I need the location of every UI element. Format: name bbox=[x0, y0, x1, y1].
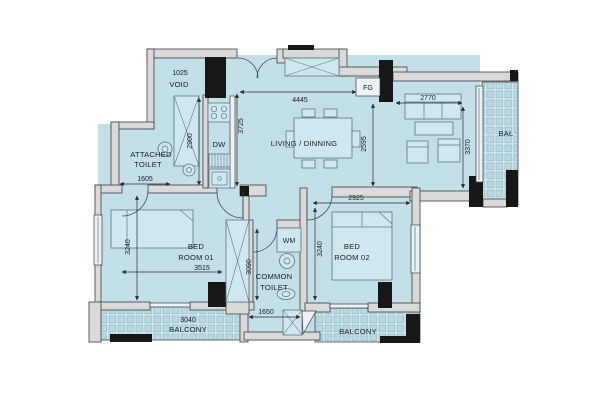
floor-plan: 1025 VOID 2900 ATTACHED TOILET 1605 DW 3… bbox=[0, 0, 600, 400]
floor-plan-drawing: 1025 VOID 2900 ATTACHED TOILET 1605 DW 3… bbox=[0, 0, 600, 400]
balcony-se-label: BALCONY bbox=[339, 327, 377, 336]
dimension-3240-bed1: 3240 bbox=[125, 239, 132, 255]
washing-machine-label: WM bbox=[283, 238, 296, 245]
dimension-2770: 2770 bbox=[420, 95, 436, 102]
foyer-cabinet bbox=[285, 58, 339, 76]
dimension-1605: 1605 bbox=[137, 176, 153, 183]
living-balcony-glass bbox=[476, 86, 483, 182]
common-toilet-label-1: COMMON bbox=[256, 272, 293, 281]
bedroom1-balcony-door bbox=[150, 303, 190, 307]
dimension-1650: 1650 bbox=[258, 309, 274, 316]
dimension-2595: 2595 bbox=[361, 136, 368, 152]
attached-toilet-label-2: TOILET bbox=[134, 160, 162, 169]
attached-toilet-label-1: ATTACHED bbox=[130, 150, 172, 159]
dimension-3090: 3090 bbox=[246, 259, 253, 275]
coffee-table-icon bbox=[415, 122, 453, 135]
living-dining-label: LIVING / DINNING bbox=[271, 139, 338, 148]
balcony-east-label: BAL bbox=[499, 129, 514, 138]
fg-label: FG bbox=[363, 85, 373, 92]
common-toilet-basin-icon bbox=[280, 254, 295, 269]
bedroom2-label-1: BED bbox=[344, 242, 361, 251]
bed-icon-bedroom2 bbox=[332, 212, 392, 280]
balcony-sw-label: BALCONY bbox=[169, 325, 207, 334]
sink-icon bbox=[209, 169, 230, 188]
stove-icon bbox=[208, 103, 230, 122]
bedroom1-label-1: BED bbox=[188, 242, 205, 251]
dimension-4445: 4445 bbox=[292, 97, 308, 104]
kitchen-counter-edge bbox=[230, 96, 235, 188]
dishwasher-label: DW bbox=[212, 140, 226, 149]
bedroom2-label-2: ROOM 02 bbox=[334, 253, 370, 262]
bedroom2-balcony-door bbox=[330, 304, 368, 308]
bedroom2-window bbox=[411, 225, 420, 273]
common-toilet-label-2: TOILET bbox=[260, 283, 288, 292]
attached-toilet-wc-icon bbox=[183, 164, 195, 176]
dimension-2925: 2925 bbox=[348, 195, 364, 202]
dimension-3240-bed2: 3240 bbox=[317, 241, 324, 257]
dimension-2900: 2900 bbox=[187, 133, 194, 149]
dishwasher-icon bbox=[209, 154, 230, 167]
dimension-3370: 3370 bbox=[465, 139, 472, 155]
dimension-3725: 3725 bbox=[238, 118, 245, 134]
hall-cabinet bbox=[174, 96, 199, 166]
balcony-sw-dim: 3040 bbox=[180, 317, 196, 324]
dimension-3515: 3515 bbox=[194, 265, 210, 272]
void-dim-label: 1025 bbox=[172, 70, 188, 77]
void-label: VOID bbox=[169, 80, 189, 89]
bedroom1-label-2: ROOM 01 bbox=[178, 253, 214, 262]
